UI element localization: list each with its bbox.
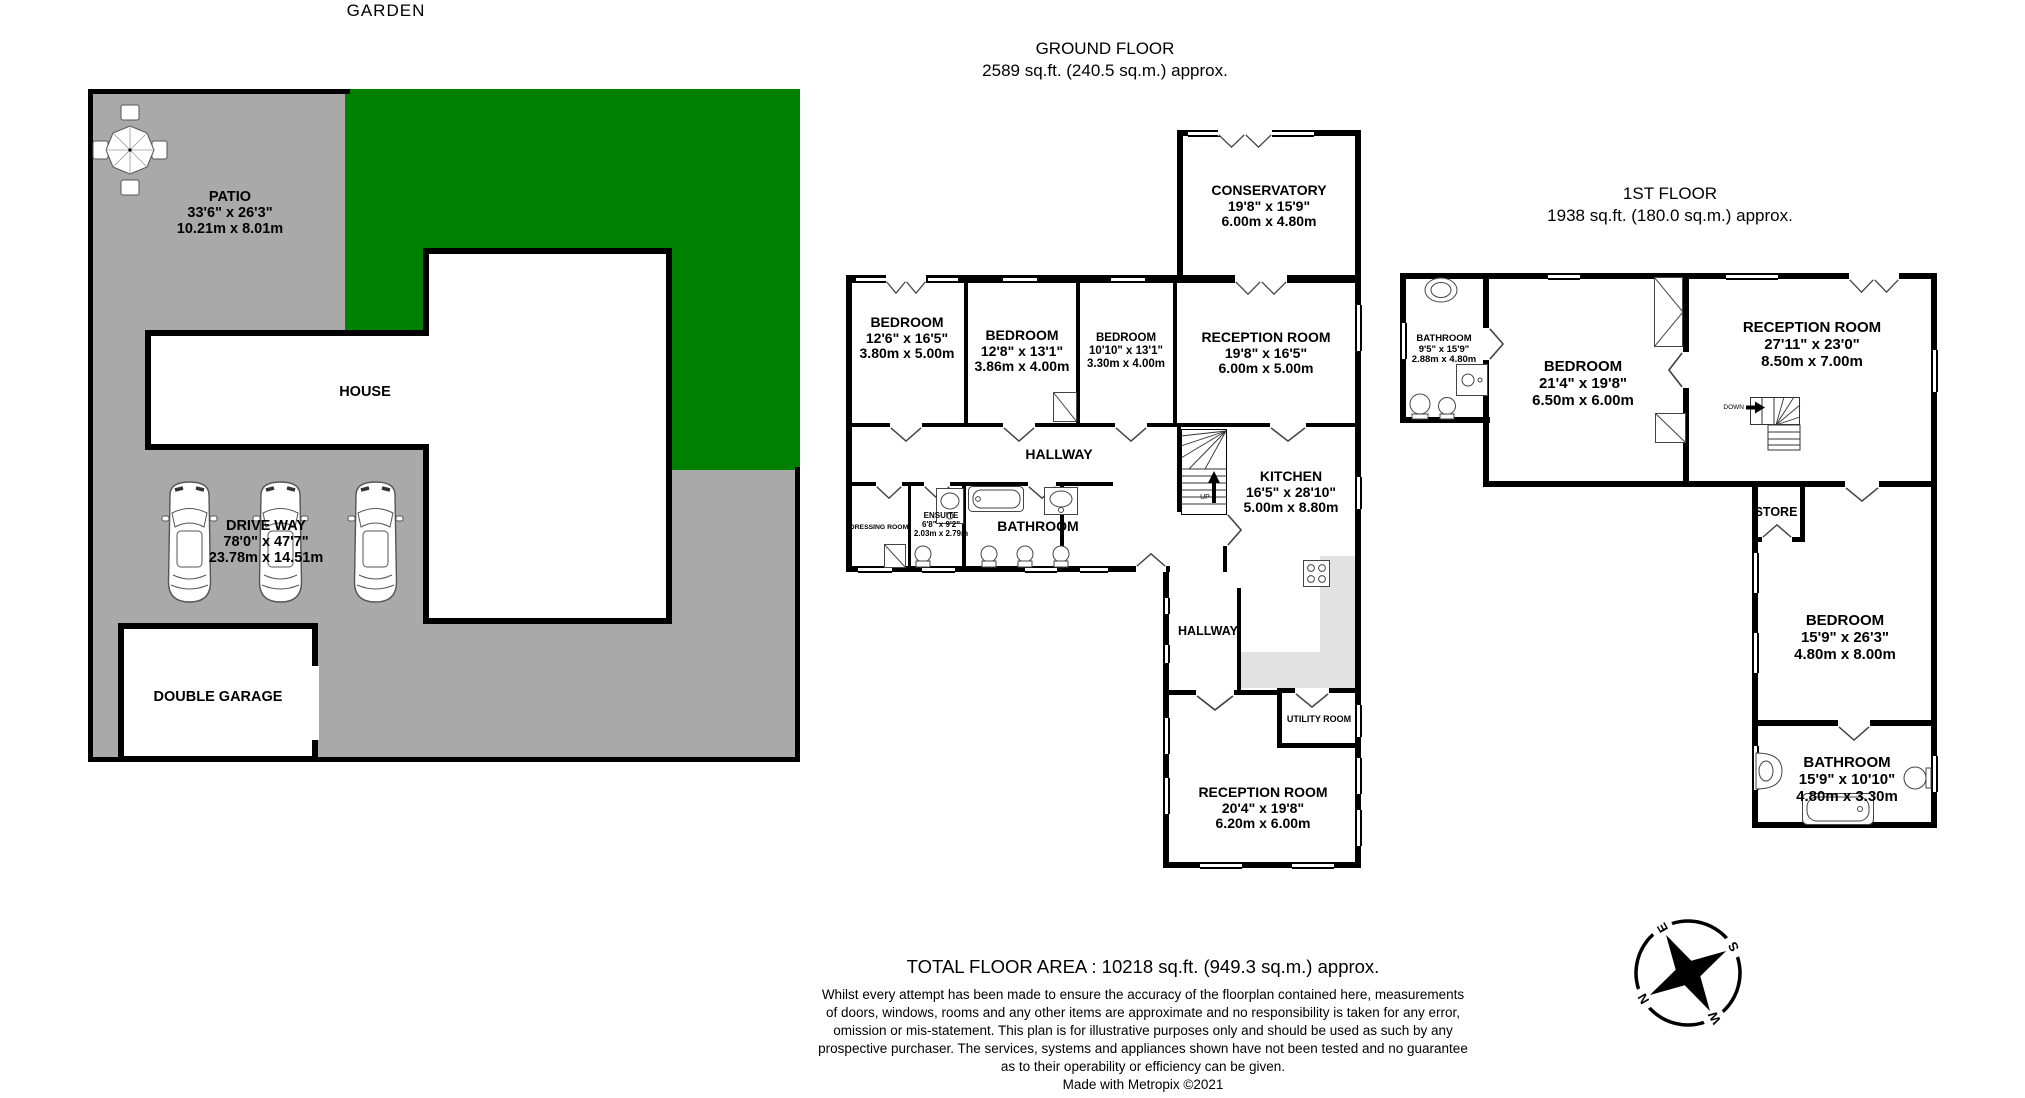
- window: [1272, 130, 1314, 137]
- room-label-bathroom: BATHROOM: [978, 519, 1098, 535]
- total-floor-area: TOTAL FLOOR AREA : 10218 sq.ft. (949.3 s…: [743, 955, 1543, 979]
- room-label-hallway: HALLWAY: [989, 447, 1129, 463]
- window: [1726, 273, 1778, 280]
- window: [856, 276, 886, 283]
- door-swing: [1762, 524, 1792, 538]
- room-label-bedroom: BEDROOM 21'4" x 19'8" 6.50m x 6.00m: [1493, 359, 1673, 409]
- shower-icon: [1456, 364, 1488, 396]
- room-label-reception: RECEPTION ROOM 27'11" x 23'0" 8.50m x 7.…: [1720, 320, 1904, 370]
- room-label-ensuite: ENSUITE 6'8" x 9'2" 2.03m x 2.79m: [904, 512, 978, 539]
- house-label: HOUSE: [295, 384, 435, 400]
- door-swing: [1003, 427, 1035, 442]
- room-label-reception: RECEPTION ROOM 19'8" x 16'5" 6.00m x 5.0…: [1186, 330, 1346, 377]
- window: [1111, 276, 1145, 283]
- room-label-bathroom: BATHROOM 15'9" x 10'10" 4.80m x 3.30m: [1756, 755, 1938, 805]
- ground-floor-subtitle: 2589 sq.ft. (240.5 sq.m.) approx.: [950, 60, 1260, 82]
- wardrobe-icon: [1655, 413, 1686, 443]
- credit-line: Made with Metropix ©2021: [668, 1076, 1618, 1094]
- room-label-bedroom: BEDROOM 12'8" x 13'1" 3.86m x 4.00m: [952, 328, 1092, 375]
- window: [1200, 862, 1242, 869]
- room-label-store: STORE: [1747, 505, 1805, 519]
- door-swing: [1136, 553, 1166, 567]
- window: [928, 276, 958, 283]
- room-label-kitchen: KITCHEN 16'5" x 28'10" 5.00m x 8.80m: [1211, 469, 1371, 516]
- sink-icon: [1044, 487, 1078, 515]
- door-swing: [1235, 281, 1261, 295]
- garden-label: GARDEN: [306, 0, 466, 22]
- down-arrow-icon: [1746, 401, 1766, 414]
- garden-lawn: [672, 89, 800, 470]
- room-label-dressing: DRESSING ROOM: [847, 524, 911, 532]
- floorplan-page: GARDEN: [0, 0, 2025, 1098]
- window: [1080, 566, 1108, 573]
- plot-border: [88, 89, 350, 94]
- room-label-bathroom: BATHROOM 9'5" x 15'9" 2.88m x 4.80m: [1403, 334, 1485, 366]
- door-swing: [1845, 487, 1879, 502]
- door-swing: [1849, 279, 1874, 293]
- sink-icon: [1424, 277, 1458, 303]
- door-swing: [876, 486, 902, 499]
- wall: [1483, 423, 1489, 487]
- wardrobe-icon: [1654, 277, 1683, 347]
- toilet-icon: [912, 544, 934, 568]
- door-swing: [906, 281, 926, 294]
- window: [1163, 778, 1170, 814]
- wall: [1223, 546, 1227, 572]
- disclaimer-line: Whilst every attempt has been made to en…: [668, 986, 1618, 1004]
- window: [1292, 862, 1334, 869]
- window: [1752, 553, 1759, 593]
- door-swing: [1245, 134, 1272, 148]
- room-label-bedroom: BEDROOM 10'10" x 13'1" 3.30m x 4.00m: [1078, 332, 1174, 371]
- driveway-label: DRIVE WAY 78'0" x 47'7" 23.78m x 14.51m: [166, 518, 366, 567]
- window: [1548, 273, 1580, 280]
- patio-label: PATIO 33'6" x 26'3" 10.21m x 8.01m: [130, 189, 330, 238]
- window: [1931, 350, 1938, 392]
- first-floor-subtitle: 1938 sq.ft. (180.0 sq.m.) approx.: [1515, 205, 1825, 227]
- room-label-utility: UTILITY ROOM: [1277, 714, 1361, 724]
- window: [1163, 718, 1170, 754]
- window: [1355, 758, 1362, 794]
- wardrobe-icon: [884, 544, 906, 568]
- disclaimer-line: omission or mis-statement. This plan is …: [668, 1022, 1618, 1040]
- door-swing: [1196, 695, 1234, 711]
- door-swing: [1115, 427, 1147, 442]
- window: [1355, 810, 1362, 846]
- stove-icon: [1303, 560, 1330, 587]
- window: [1188, 130, 1220, 137]
- toilet-icon: [1436, 396, 1458, 420]
- ground-floor-header: GROUND FLOOR 2589 sq.ft. (240.5 sq.m.) a…: [950, 38, 1260, 82]
- door-swing: [1270, 427, 1306, 442]
- door-swing: [1218, 134, 1245, 148]
- toilet-icon: [1050, 544, 1072, 568]
- window: [1355, 305, 1362, 351]
- toilet-icon: [1408, 392, 1432, 420]
- patio-table-icon: [92, 104, 168, 196]
- garage-label: DOUBLE GARAGE: [126, 689, 310, 705]
- wall: [1277, 743, 1361, 748]
- ground-floor-title: GROUND FLOOR: [950, 38, 1260, 60]
- room-label-conservatory: CONSERVATORY 19'8" x 15'9" 6.00m x 4.80m: [1180, 183, 1358, 230]
- window: [1163, 645, 1170, 663]
- door-opening: [1683, 352, 1689, 388]
- disclaimer: Whilst every attempt has been made to en…: [668, 986, 1618, 1094]
- toilet-icon: [1014, 544, 1036, 568]
- room-label-hallway: HALLWAY: [1167, 624, 1249, 638]
- bathtub-icon: [968, 486, 1024, 512]
- garage-door-opening: [311, 666, 319, 740]
- first-floor-header: 1ST FLOOR 1938 sq.ft. (180.0 sq.m.) appr…: [1515, 183, 1825, 227]
- door-swing: [1261, 281, 1287, 295]
- room-label-bedroom: BEDROOM 15'9" x 26'3" 4.80m x 8.00m: [1755, 613, 1935, 663]
- stairs-down-label: DOWN: [1706, 404, 1744, 411]
- door-swing: [1489, 328, 1504, 360]
- first-floor-title: 1ST FLOOR: [1515, 183, 1825, 205]
- door-swing: [1874, 279, 1899, 293]
- window: [1163, 598, 1170, 614]
- house-wing: [423, 248, 672, 624]
- door-swing: [1838, 726, 1870, 741]
- plot-border: [795, 467, 800, 762]
- door-swing: [1295, 693, 1329, 708]
- door-swing: [886, 281, 906, 294]
- room-label-reception: RECEPTION ROOM 20'4" x 19'8" 6.20m x 6.0…: [1183, 785, 1343, 832]
- door-swing: [1227, 514, 1242, 546]
- door-swing: [890, 427, 922, 442]
- window: [1003, 276, 1037, 283]
- disclaimer-line: as to their operability or efficiency ca…: [668, 1058, 1618, 1076]
- disclaimer-line: of doors, windows, rooms and any other i…: [668, 1004, 1618, 1022]
- disclaimer-line: prospective purchaser. The services, sys…: [668, 1040, 1618, 1058]
- toilet-icon: [978, 544, 1000, 568]
- compass-rose-icon: N E S W: [1627, 912, 1749, 1034]
- wardrobe-icon: [1053, 392, 1077, 422]
